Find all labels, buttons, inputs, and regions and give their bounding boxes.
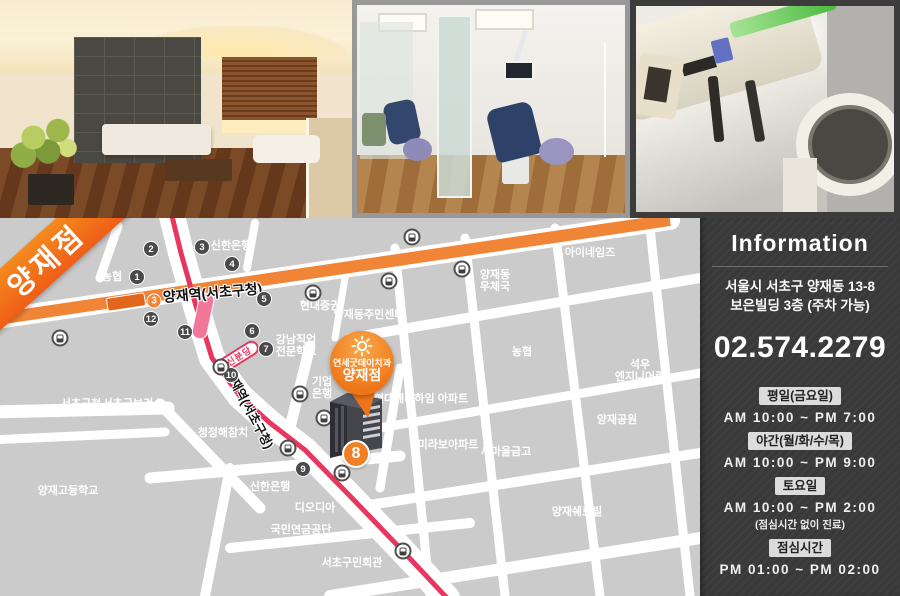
hours-badge-lunch: 점심시간 [769,539,831,557]
lobby-lit-shelf [222,120,317,133]
exit-badge-5: 5 [256,291,272,307]
divider [712,266,888,267]
address-line-1: 서울시 서초구 양재동 13-8 [700,277,900,296]
map-label: 서초구민회관 [322,557,383,569]
map-label: 디오디아 [295,502,335,514]
map-label: 신한은행 [211,240,251,252]
hours-badge-night: 야간(월/화/수/목) [748,432,852,450]
opening-hours: 평일(금요일) AM 10:00 ~ PM 7:00 야간(월/화/수/목) A… [700,387,900,577]
map-label: 서초구보건소 [103,398,164,410]
xray-arm [744,80,765,143]
address-line-2: 보은빌딩 3층 (주차 가능) [700,296,900,315]
phone-number: 02.574.2279 [700,331,900,365]
bus-stop-icon [404,229,421,246]
lobby-wood-blinds [222,57,317,120]
glass-partition [437,15,472,198]
exit-badge-4: 4 [224,256,240,272]
coat-rack [604,42,606,156]
marker-branch-name: 양재점 [343,368,382,383]
hours-badge-weekday: 평일(금요일) [759,387,841,405]
chair-monitor [504,61,533,80]
map-label: 농협 [512,346,532,358]
map-label: 서초구청 [61,398,101,410]
clinic-marker: 연세굿데이치과 양재점 [330,331,394,395]
hours-time-lunch: PM 01:00 ~ PM 02:00 [700,562,900,577]
map-label: 미라보아파트 [418,439,479,451]
hours-lunch: 점심시간 PM 01:00 ~ PM 02:00 [700,539,900,577]
map-label: 아이네임즈 [565,247,616,259]
map-label: 양재동 우체국 [480,269,510,293]
map-label: 양재고등학교 [38,485,99,497]
map-label: 청정해참치 [198,427,249,439]
bus-stop-icon [213,359,230,376]
ct-column [783,158,817,212]
bus-stop-icon [334,465,351,482]
photo-treatment-room [352,0,630,218]
map-label: 양재공원 [597,414,637,426]
bus-stop-icon [395,543,412,560]
green-chair [362,113,386,146]
exit-badge-3: 3 [194,239,210,255]
bus-stop-icon [52,330,69,347]
photo-clinic-lobby [0,0,352,218]
bus-stop-icon [381,273,398,290]
hours-badge-saturday: 토요일 [775,477,826,495]
lobby-bench [102,124,211,155]
lobby-plant [4,113,103,183]
lobby-table [165,159,232,181]
clinic-location-section: 농협 신한은행 현대증권 양재동주민센터 강남직업 전문학교 기업 은행 현대테… [0,0,900,596]
hours-saturday: 토요일 AM 10:00 ~ PM 2:00 (점심시간 없이 진료) [700,477,900,532]
ceiling-light-panel [475,9,534,30]
map-label: 신한은행 [250,481,290,493]
exit-badge-2: 2 [143,241,159,257]
hours-weekday: 평일(금요일) AM 10:00 ~ PM 7:00 [700,387,900,425]
purple-stool [539,138,574,165]
hours-time-saturday: AM 10:00 ~ PM 2:00 [700,500,900,515]
line3-badge: 3 [147,294,162,309]
bus-stop-icon [305,285,322,302]
hours-time-weekday: AM 10:00 ~ PM 7:00 [700,410,900,425]
lobby-counter [306,118,352,218]
exit-badge-12: 12 [143,311,159,327]
photo-xray-room [630,0,900,218]
map-label: 국민연금공단 [271,524,332,536]
map-label: 양재쉐르빌 [552,506,603,518]
exit-badge-9: 9 [295,461,311,477]
lobby-sofa [253,135,320,163]
hours-note-saturday: (점심시간 없이 진료) [700,517,900,532]
purple-stool [403,138,432,161]
bus-stop-icon [280,440,297,457]
info-panel: Information 서울시 서초구 양재동 13-8 보은빌딩 3층 (주차… [700,218,900,596]
exit-badge-6: 6 [244,323,260,339]
map-label: 새마을금고 [481,446,532,458]
map-label: 양재동주민센터 [334,309,405,321]
sun-icon [351,335,373,357]
hours-night: 야간(월/화/수/목) AM 10:00 ~ PM 9:00 [700,432,900,470]
map-label: 석우 엔지니어링 [615,359,666,383]
exit-badge-7: 7 [258,341,274,357]
location-map: 농협 신한은행 현대증권 양재동주민센터 강남직업 전문학교 기업 은행 현대테… [0,218,700,596]
exit-badge-8: 8 [342,440,370,468]
bus-stop-icon [454,261,471,278]
exit-badge-11: 11 [177,324,193,340]
treatment-floor [357,155,625,213]
clinic-photos-row [0,0,900,218]
info-title: Information [700,230,900,257]
bus-stop-icon [292,386,309,403]
exit-badge-1: 1 [129,269,145,285]
map-label: 농협 [102,271,122,283]
hours-time-night: AM 10:00 ~ PM 9:00 [700,455,900,470]
map-label: 현대테라하임 아파트 [374,393,468,405]
map-label: 강남직업 전문학교 [276,334,316,358]
